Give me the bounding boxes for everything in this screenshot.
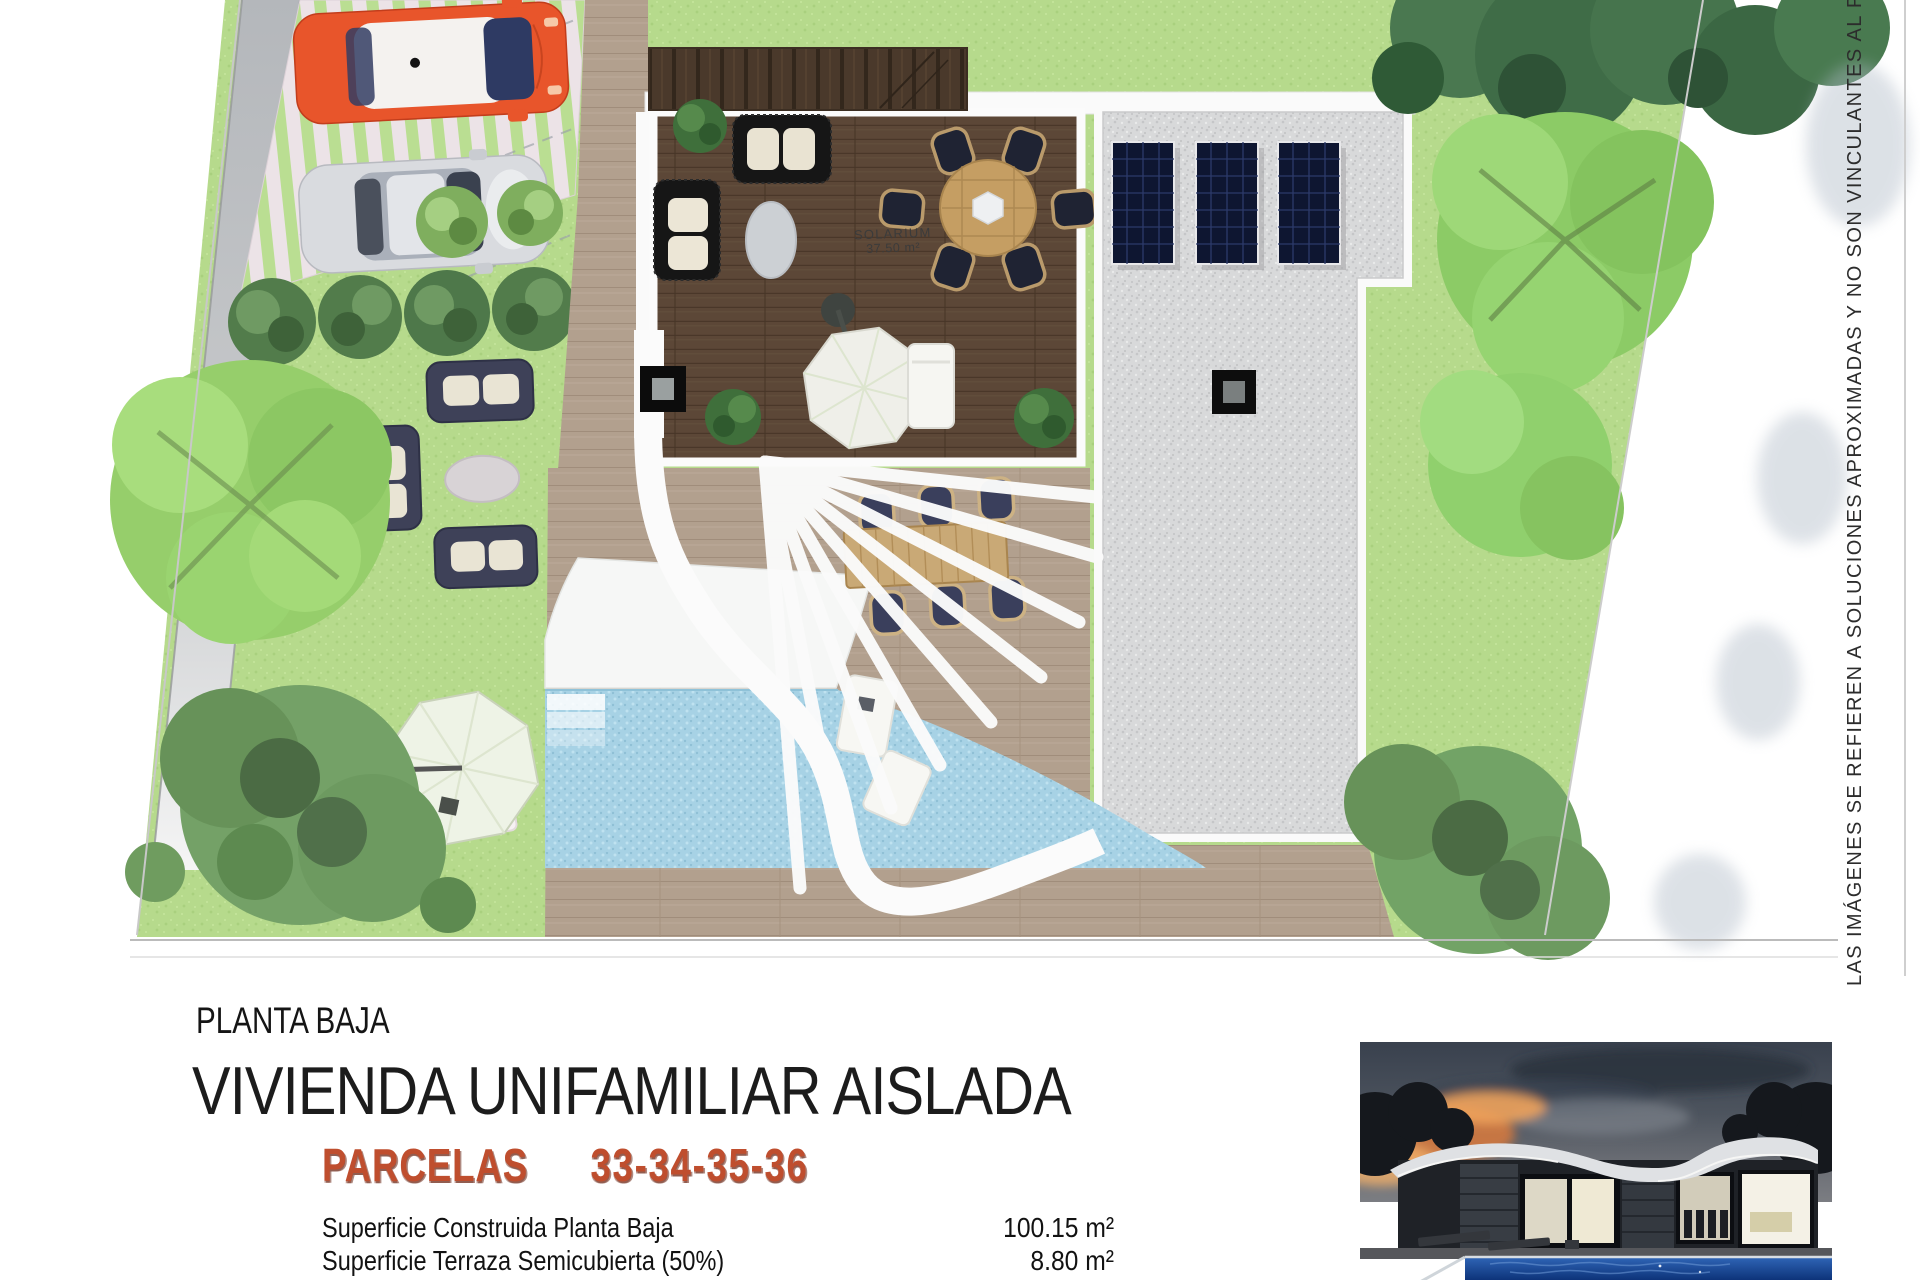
deck-sofa-vertical bbox=[654, 180, 720, 280]
parcels-numbers: 33-34-35-36 bbox=[590, 1139, 808, 1191]
parcels-label: PARCELAS bbox=[322, 1139, 528, 1191]
surface-label: Superficie Construida Planta Baja bbox=[322, 1212, 924, 1244]
floor-label: PLANTA BAJA bbox=[196, 1000, 390, 1042]
table-row: Superficie Construida Planta Baja 100.15… bbox=[322, 1212, 1114, 1245]
brochure-page: SOLARIUM 37.50 m² LAS IMÁGENES SE REFIER… bbox=[0, 0, 1920, 1280]
solarium-area-label: SOLARIUM 37.50 m² bbox=[828, 224, 959, 259]
page-edge-line bbox=[1904, 0, 1906, 976]
deck-coffee-table bbox=[746, 202, 796, 278]
roof-hatch bbox=[1212, 370, 1256, 414]
surface-label: Superficie Terraza Semicubierta (50%) bbox=[322, 1245, 924, 1277]
surface-value: 100.15 m² bbox=[924, 1212, 1114, 1244]
surface-table: Superficie Construida Planta Baja 100.15… bbox=[322, 1212, 1114, 1278]
gravel-roof bbox=[1103, 112, 1403, 833]
car-orange bbox=[292, 0, 570, 133]
site-plan bbox=[0, 0, 1920, 962]
legal-disclaimer: LAS IMÁGENES SE REFIEREN A SOLUCIONES AP… bbox=[1844, 0, 1880, 986]
deck-sofa-horizontal bbox=[733, 115, 831, 183]
deck-lounger bbox=[908, 344, 954, 428]
parcels-line: PARCELAS33-34-35-36 bbox=[322, 1138, 809, 1192]
page-title: VIVIENDA UNIFAMILIAR AISLADA bbox=[192, 1052, 1071, 1130]
deck-hatch bbox=[640, 366, 686, 412]
table-row: Superficie Terraza Semicubierta (50%) 8.… bbox=[322, 1245, 1114, 1278]
house-photo bbox=[1360, 1042, 1832, 1280]
surface-value: 8.80 m² bbox=[924, 1245, 1114, 1277]
photo-pool bbox=[1420, 1257, 1832, 1280]
solar-panels bbox=[1112, 142, 1346, 270]
